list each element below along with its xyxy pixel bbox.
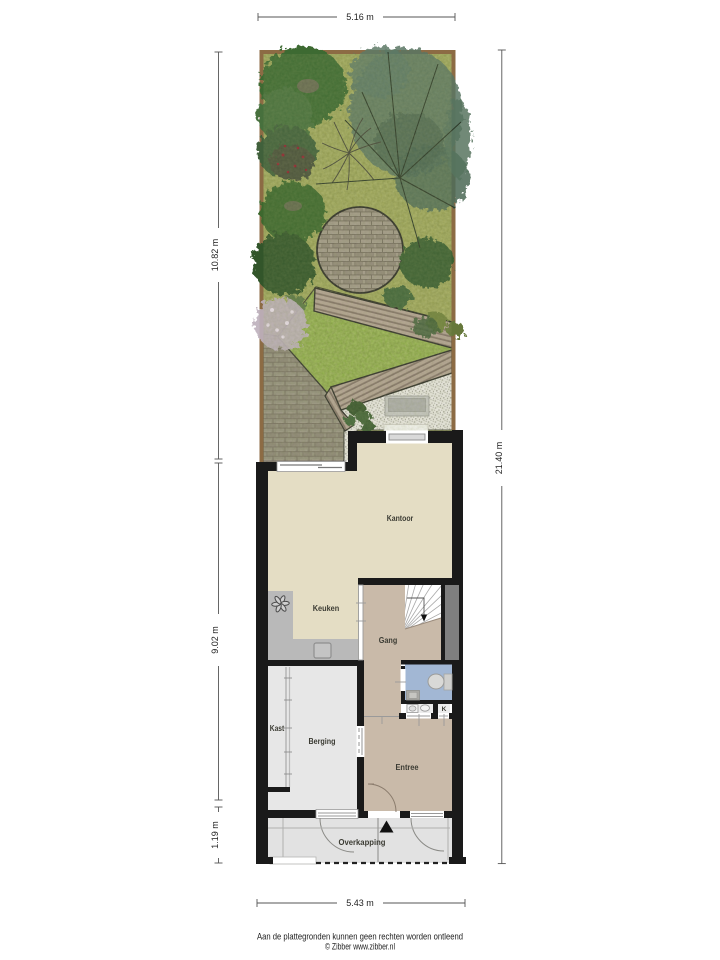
- svg-text:Berging: Berging: [309, 737, 336, 746]
- svg-text:5.43 m: 5.43 m: [346, 898, 374, 908]
- svg-text:1.19 m: 1.19 m: [210, 821, 220, 849]
- svg-text:Gang: Gang: [379, 636, 398, 645]
- svg-text:9.02 m: 9.02 m: [210, 626, 220, 654]
- svg-text:K: K: [442, 706, 447, 713]
- svg-text:Kast: Kast: [270, 724, 285, 733]
- svg-text:21.40 m: 21.40 m: [494, 442, 504, 475]
- svg-text:Keuken: Keuken: [313, 604, 340, 613]
- svg-text:Aan de plattegronden kunnen ge: Aan de plattegronden kunnen geen rechten…: [257, 932, 463, 942]
- svg-text:5.16 m: 5.16 m: [346, 12, 374, 22]
- svg-text:Overkapping: Overkapping: [339, 838, 386, 847]
- svg-text:Entree: Entree: [396, 763, 420, 772]
- svg-text:Kantoor: Kantoor: [387, 514, 414, 523]
- svg-text:10.82 m: 10.82 m: [210, 239, 220, 272]
- svg-text:© Zibber www.zibber.nl: © Zibber www.zibber.nl: [325, 941, 395, 951]
